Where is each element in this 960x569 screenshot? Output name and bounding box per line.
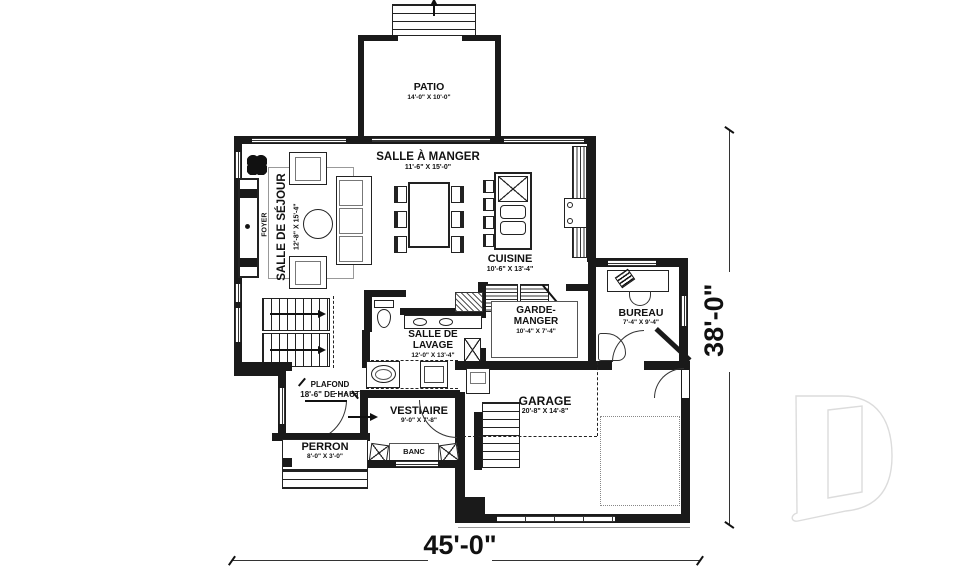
dining-chair (451, 186, 464, 203)
wall-segment (368, 390, 460, 398)
room-label-sejour: SALLE DE SÉJOUR (276, 162, 288, 292)
room-label-bureau: BUREAU (591, 308, 691, 319)
dining-chair (451, 211, 464, 228)
stool (483, 216, 494, 229)
window (252, 138, 346, 143)
dining-table (408, 182, 450, 248)
wall-segment (358, 35, 364, 136)
dim-overall-width: 45'-0" (398, 531, 522, 559)
room-label-garde-manger-1: GARDE- (486, 306, 586, 317)
wall-segment (455, 497, 485, 523)
sofa-cushion (339, 180, 363, 206)
island-hood (498, 176, 528, 202)
dining-chair (451, 236, 464, 253)
toilet-bowl (377, 309, 391, 328)
room-dims-bureau: 7'-4" X 9'-4" (591, 320, 691, 327)
range-burner (567, 202, 573, 208)
garage-shelf-inner (470, 372, 486, 384)
stool (483, 180, 494, 193)
porch-post (283, 458, 292, 467)
room-dims-cuisine: 10'-6" X 13'-4" (460, 266, 560, 273)
window (235, 152, 241, 178)
laundry-chute (464, 338, 481, 362)
room-label-patio: PATIO (379, 82, 479, 93)
island-sink (500, 221, 526, 235)
vanity-sink-inner (375, 369, 392, 380)
stool (483, 198, 494, 211)
wall-right-kitchen (587, 136, 596, 262)
window (396, 461, 438, 467)
door-leaf (305, 400, 347, 402)
room-dims-salle-a-manger: 11'-6" X 15'-0" (348, 164, 508, 171)
stairs-arrow-head (318, 346, 326, 354)
dim-line-bottom (232, 560, 428, 561)
steps-arrow-icon (430, 0, 438, 6)
wall-segment (242, 362, 292, 371)
sofa-cushion (339, 208, 363, 234)
dim-line-right (729, 372, 730, 525)
armchair-seat (295, 157, 321, 181)
plant-icon (247, 155, 267, 175)
window (504, 138, 584, 143)
range-burner (567, 218, 573, 224)
perron-steps (282, 470, 368, 489)
patio-door (372, 138, 490, 142)
label-banc: BANC (384, 448, 444, 456)
stairs-arrow (270, 313, 318, 315)
stairs-dashed-line (333, 296, 334, 368)
fireplace-top (240, 189, 257, 198)
armchair-seat (295, 261, 321, 285)
dining-chair (394, 186, 407, 203)
washer-door (424, 366, 444, 383)
toilet-tank (374, 300, 394, 308)
room-label-perron: PERRON (275, 442, 375, 454)
dashed-line (463, 436, 597, 437)
wall-segment (358, 35, 398, 41)
stairs-arrow (270, 349, 318, 351)
wall-segment (566, 284, 590, 291)
floor-plan: PATIO 14'-0" X 10'-0" FOYER SALLE DE SÉJ… (0, 0, 960, 569)
window (608, 260, 656, 266)
dashed-line (597, 362, 598, 436)
wall-segment (364, 290, 372, 332)
garage-door (497, 516, 615, 522)
room-dims-patio: 14'-0" X 10'-0" (379, 95, 479, 102)
dim-line-bottom (492, 560, 700, 561)
parking-space (600, 416, 680, 506)
drummond-d-logo (788, 394, 906, 522)
apron-line (458, 527, 690, 528)
stool (483, 234, 494, 247)
dim-overall-height: 38'-0" (700, 250, 728, 390)
room-label-garde-manger-2: MANGER (486, 317, 586, 328)
room-label-salle-a-manger: SALLE À MANGER (348, 151, 508, 163)
linen-closet (455, 292, 483, 312)
wall-segment (474, 412, 482, 470)
room-label-cuisine: CUISINE (460, 254, 560, 266)
stairs-arrow-head (318, 310, 326, 318)
room-dims-garde-manger: 10'-4" X 7'-4" (486, 329, 586, 336)
dining-chair (394, 211, 407, 228)
office-chair (629, 291, 651, 306)
sofa-cushion (339, 236, 363, 262)
coffee-table (303, 209, 333, 239)
laundry-sink (413, 318, 427, 326)
fireplace-bottom (240, 258, 257, 267)
dining-chair (394, 236, 407, 253)
window (235, 308, 241, 342)
wall-segment (495, 35, 501, 136)
laundry-sink (439, 318, 453, 326)
side-door-arc (654, 368, 684, 398)
front-door-arc (419, 400, 457, 438)
fireplace-dot (245, 224, 250, 229)
room-dims-garage: 20'-8" X 14'-8" (495, 408, 595, 415)
island-sink (500, 205, 526, 219)
window (235, 284, 241, 302)
note-plafond-1: PLAFOND (280, 381, 380, 389)
room-label-garage: GARAGE (495, 395, 595, 408)
door-arc (612, 330, 644, 362)
dim-line-right (729, 130, 730, 272)
